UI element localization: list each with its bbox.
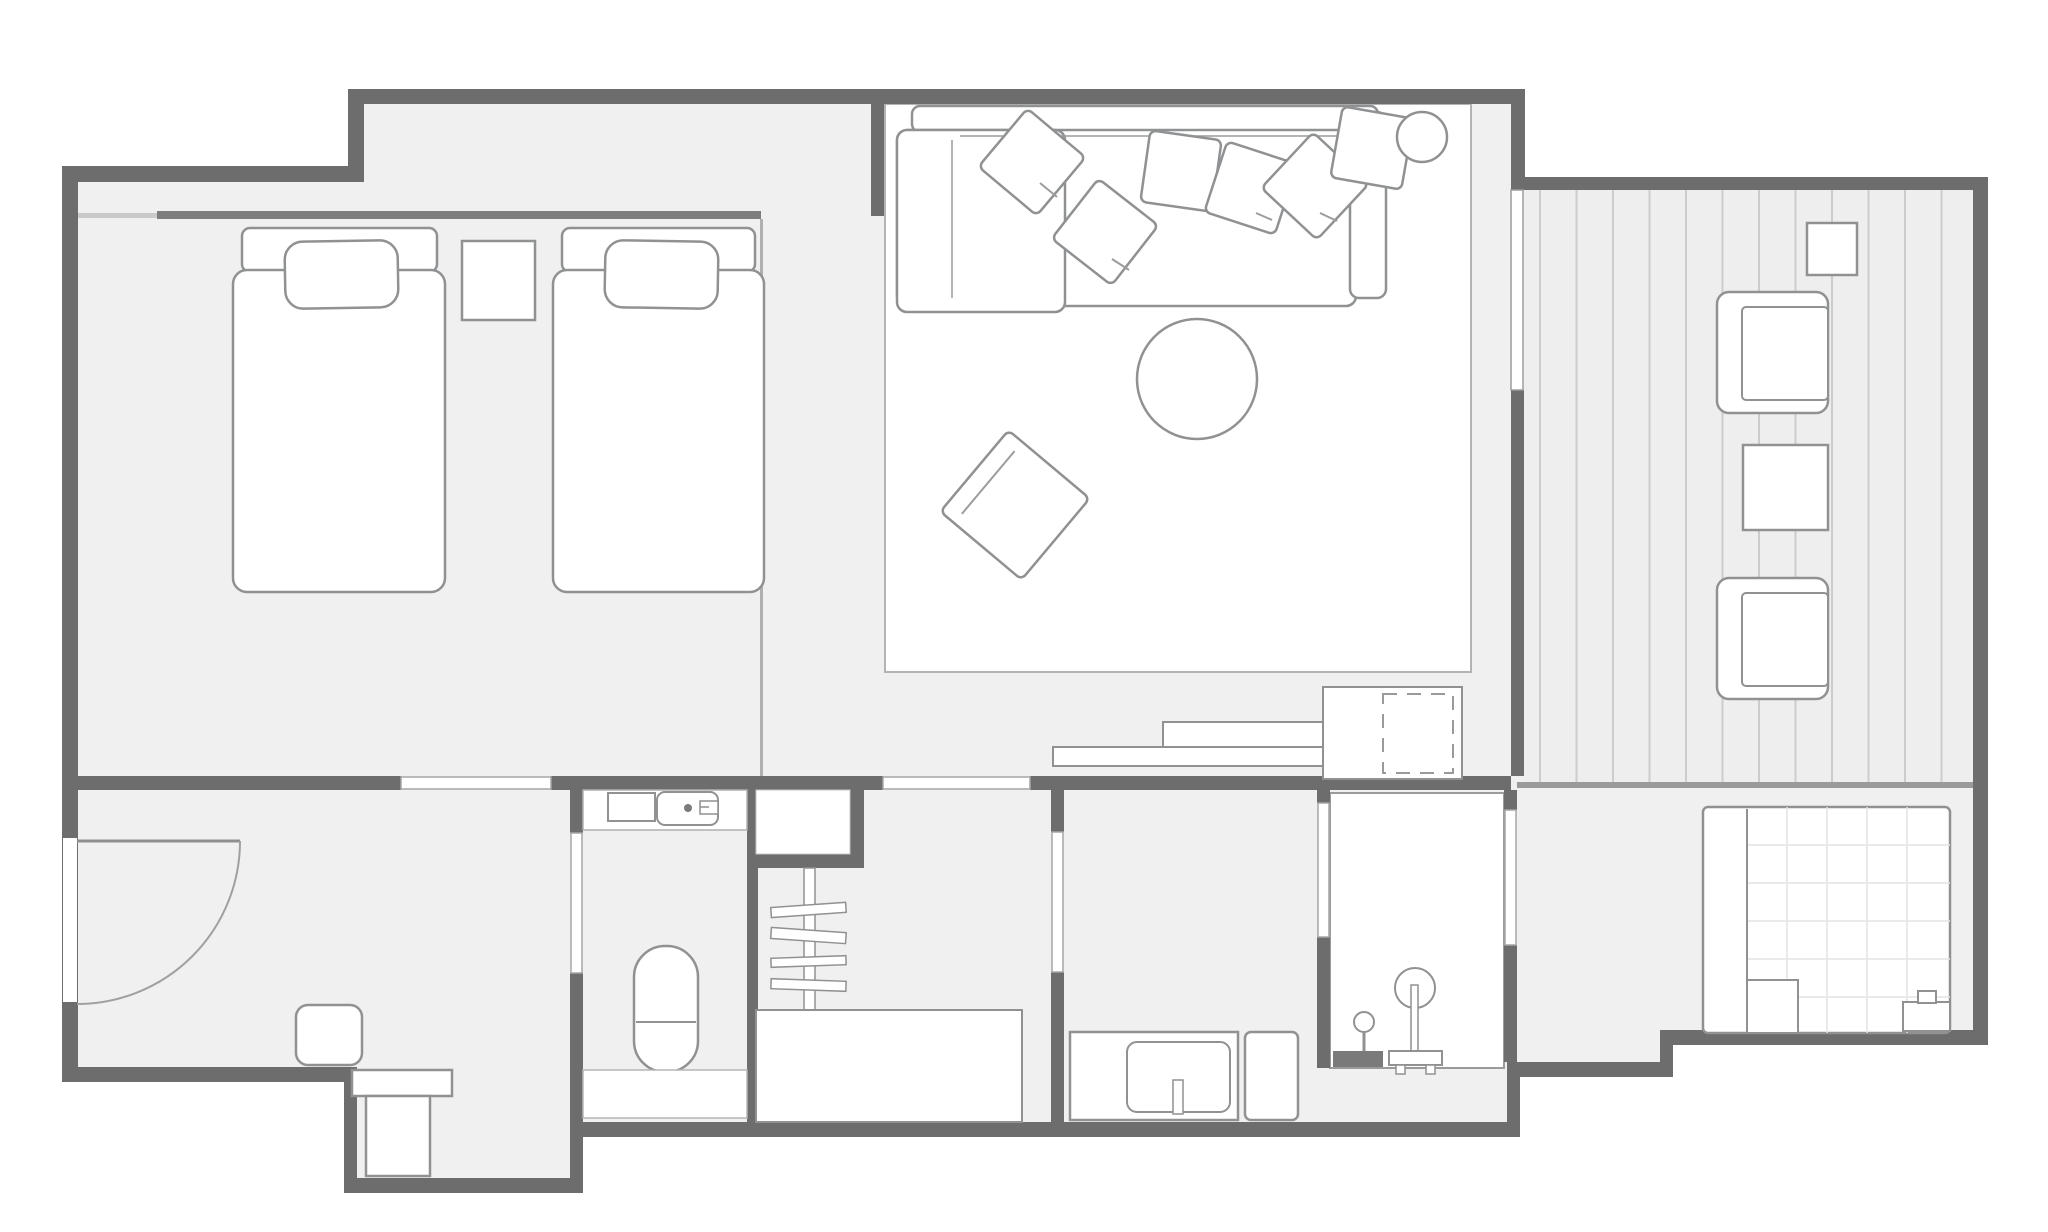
corridor-area [864,790,1051,1122]
entry-door-opening [63,838,77,1002]
wall-bottom-main [570,1122,1520,1137]
bathroom-area [1517,788,1973,1030]
toilet-room-area [583,790,747,1122]
shower-room-area [1330,790,1504,1068]
wall-divider-2 [551,776,883,790]
wall-entry-toilet-a [570,790,583,833]
balcony-door [1511,190,1523,390]
bedroom-area [78,182,761,776]
washroom-door [1052,832,1063,972]
bedroom-sliding-door [401,777,551,789]
floor-plan [0,0,2048,1232]
wall-shower-left-a [1317,790,1330,803]
wall-foyer-bottom [344,1178,583,1193]
balcony-area [1524,190,1973,782]
wall-step-1 [1660,1030,1673,1077]
wall-bottom-mid [1520,1062,1660,1077]
wall-balcony-top [1525,177,1988,190]
shower-door-left [1318,803,1329,937]
entry-bench-side [366,1096,430,1176]
wall-top-b [348,89,1525,104]
wall-washroom-a [1051,790,1064,832]
wall-washroom-b [1051,972,1064,1122]
wall-divider-1 [78,776,401,790]
washroom-area [1064,790,1317,1122]
wall-right [1973,177,1988,1045]
entry-area [78,790,570,1067]
wall-shower-right-a [1504,790,1517,810]
entry-bench-top [352,1070,452,1096]
bathroom-balcony-divider-line [1517,782,1973,788]
wall-corner-block [1511,89,1525,190]
living-room-area [885,104,1511,776]
floor-plan-page [0,0,2048,1232]
toilet-door [571,833,582,973]
wall-shower-left-b [1317,937,1330,1068]
wall-shower-right-b [1504,945,1517,1062]
closet-area [756,790,864,1010]
wall-top-a [62,166,348,182]
wall-living-window [1511,390,1524,776]
corridor-sliding-door [883,777,1030,789]
wall-entry-bottom [62,1067,344,1082]
shower-door-right [1505,810,1516,945]
wall-entry-toilet-b [570,973,583,1122]
wall-bedroom-living [871,104,884,216]
